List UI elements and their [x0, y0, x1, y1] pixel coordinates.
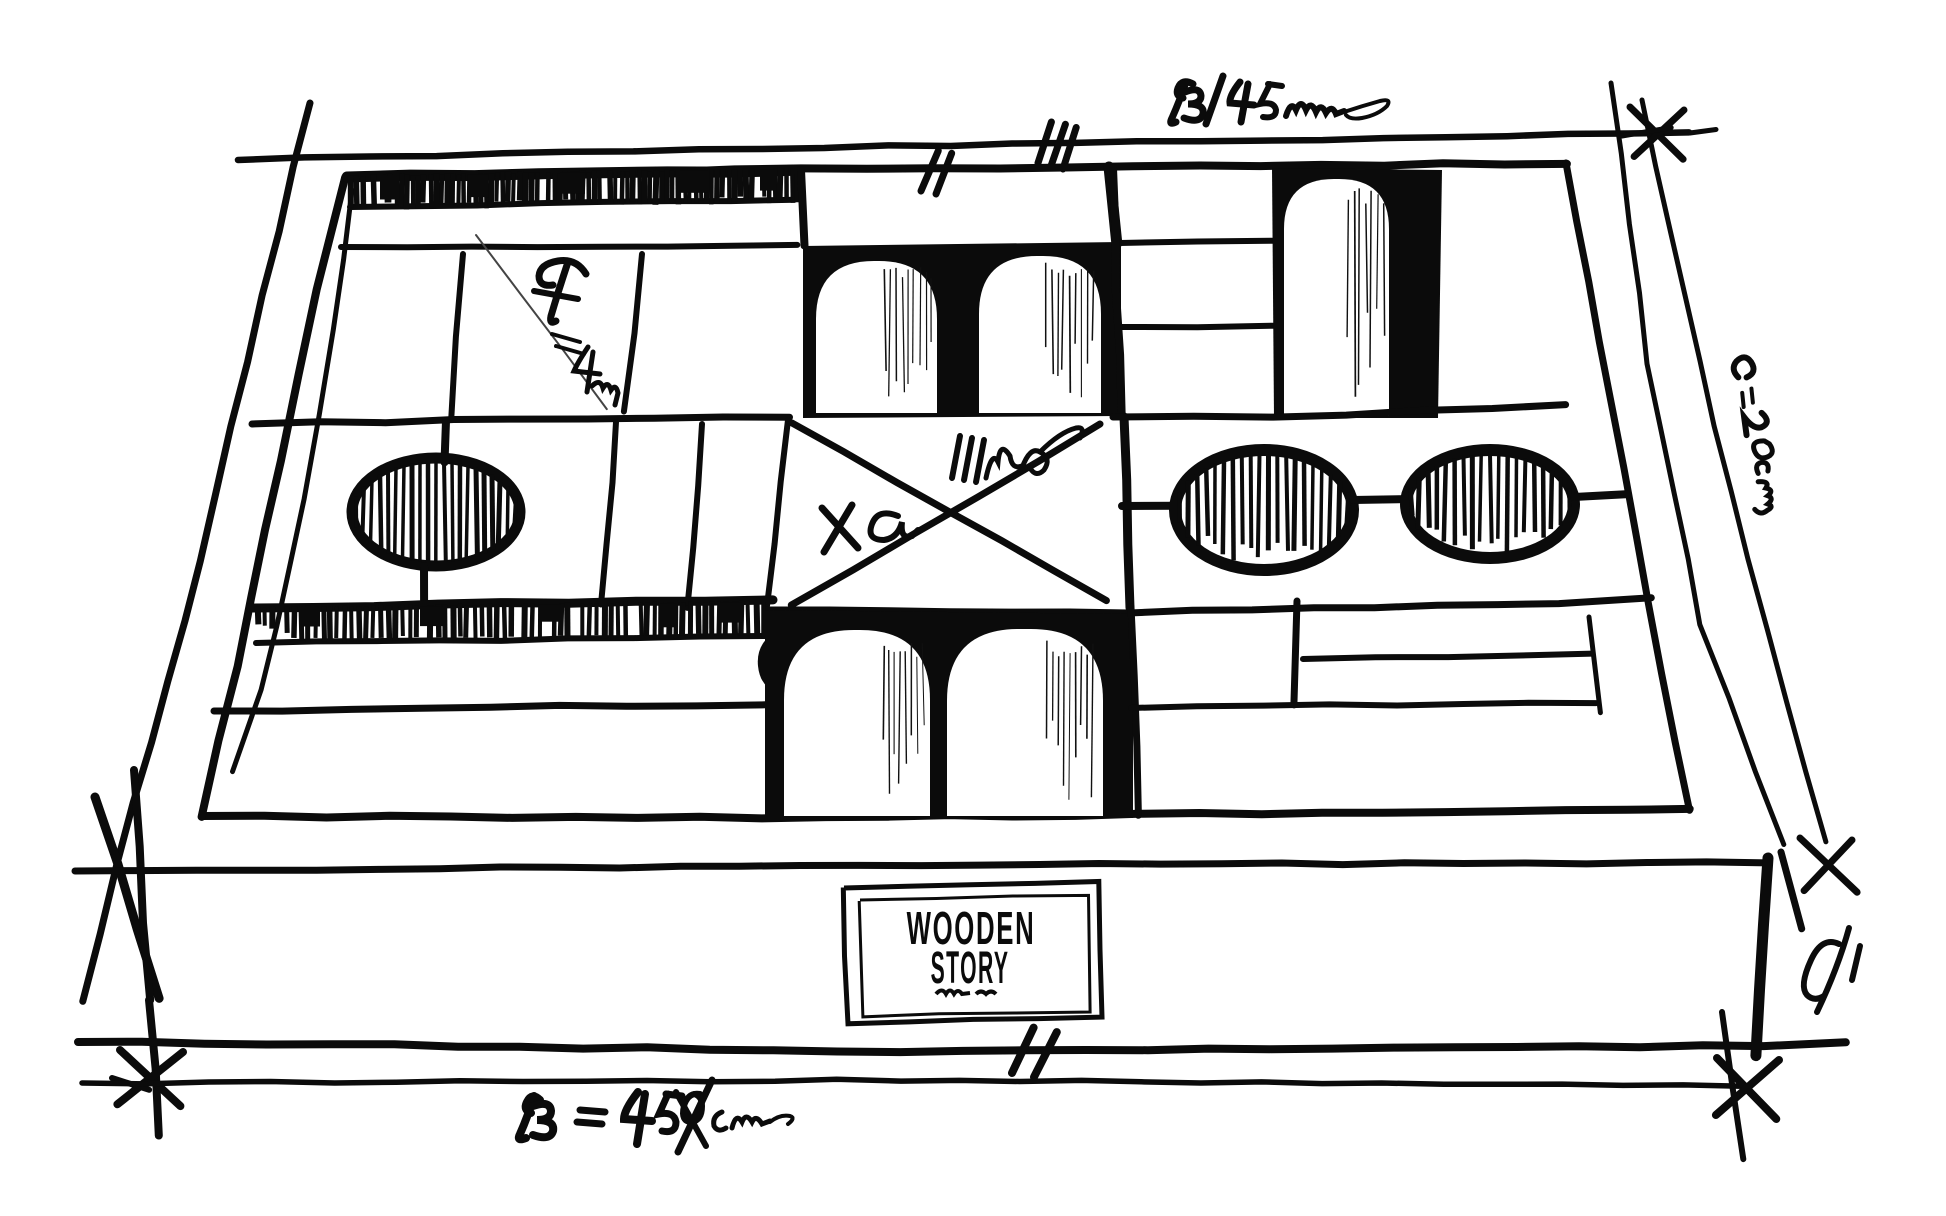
svg-text:STORY: STORY [931, 943, 1010, 993]
